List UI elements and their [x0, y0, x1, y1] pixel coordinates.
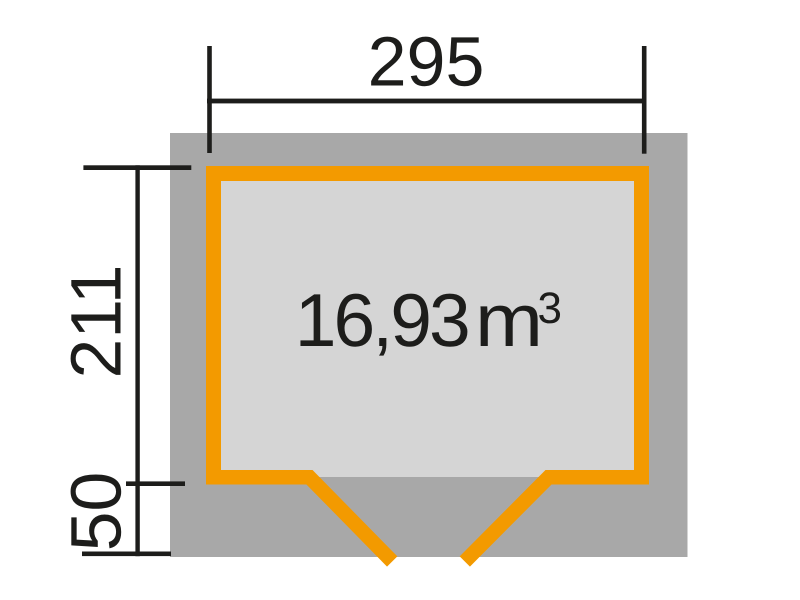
svg-text:295: 295 [368, 22, 485, 100]
svg-text:16,93: 16,93 [295, 278, 471, 362]
svg-text:50: 50 [56, 472, 136, 552]
svg-text:m: m [475, 278, 543, 362]
svg-text:211: 211 [56, 265, 136, 379]
